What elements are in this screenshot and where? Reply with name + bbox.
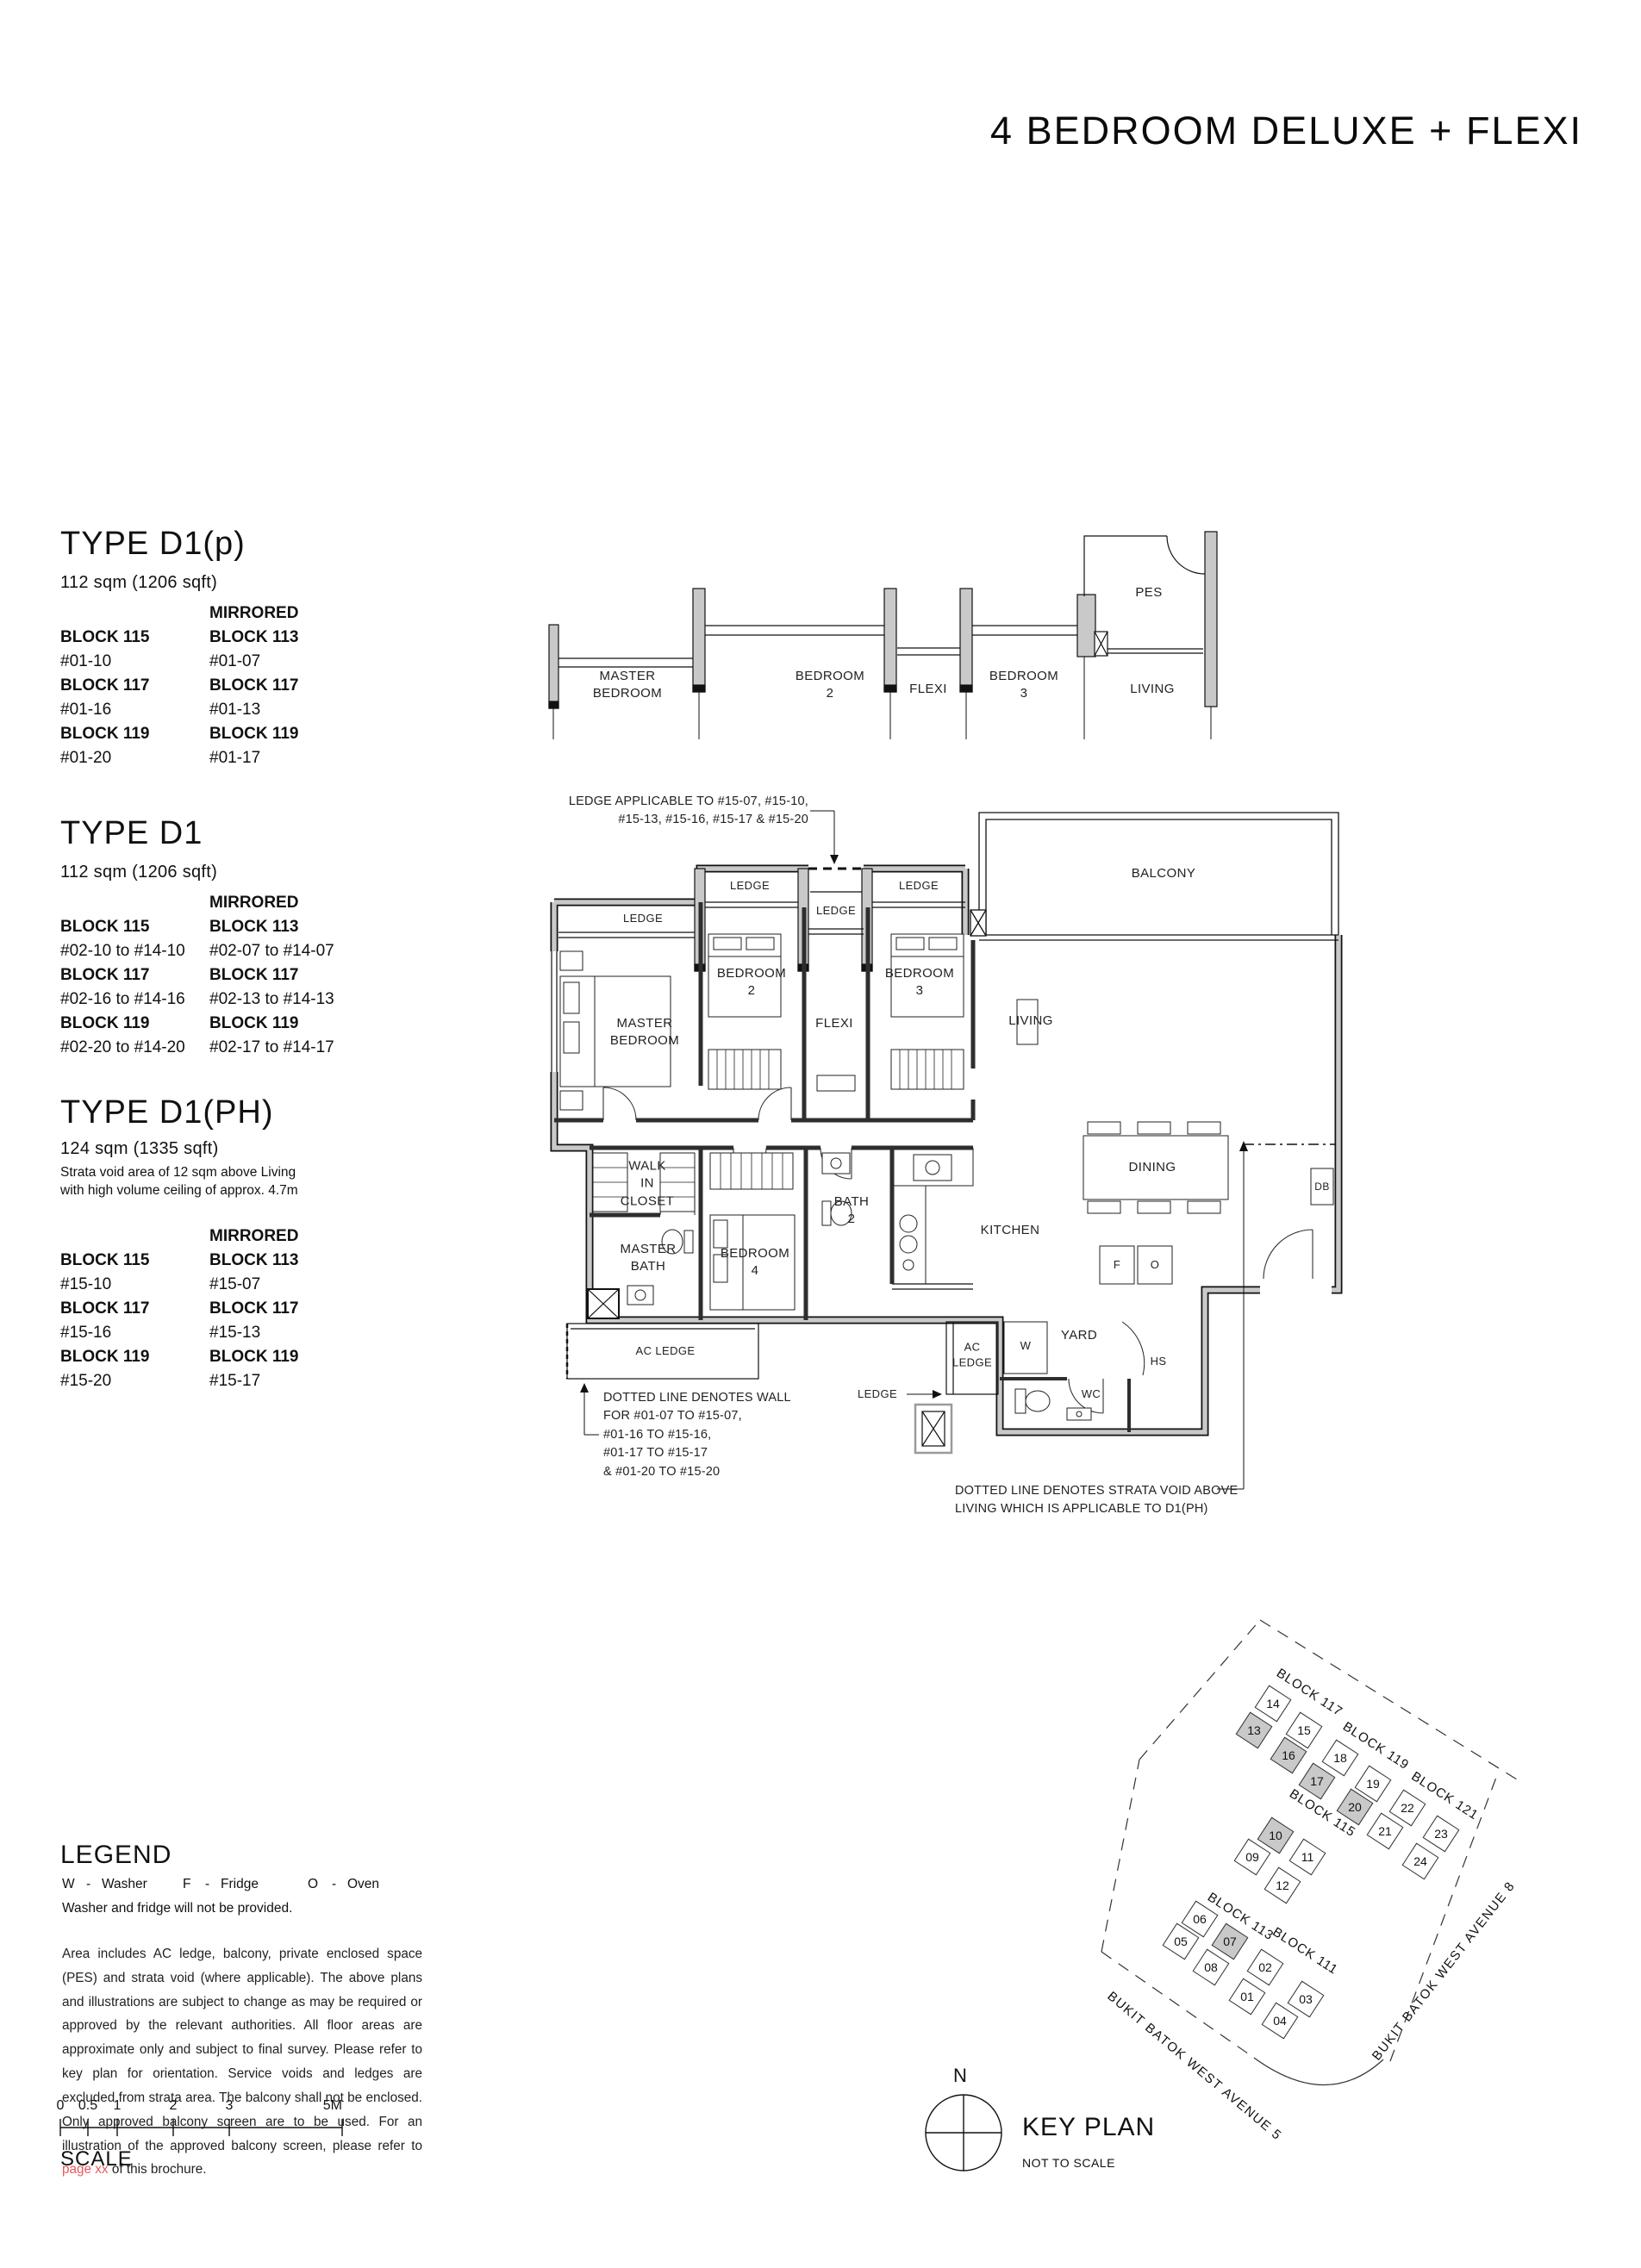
unit-range: #02-17 to #14-17 [209, 1036, 371, 1060]
type-area: 112 sqm (1206 sqft) [60, 863, 371, 882]
unit-range: #15-17 [209, 1369, 371, 1393]
keyplan-unit [1389, 1790, 1425, 1825]
keyplan-unit [1367, 1813, 1402, 1848]
keyplan-unit-number: 14 [1266, 1697, 1280, 1710]
keyplan-unit-number: 11 [1301, 1850, 1314, 1864]
label-fridge: F [1114, 1257, 1120, 1273]
block-name: BLOCK 117 [60, 963, 209, 988]
room-label-walk-in-closet: WALK IN CLOSET [621, 1158, 674, 1211]
room-label-flexi-upper: FLEXI [909, 681, 947, 698]
unit-range: #02-10 to #14-10 [60, 939, 209, 963]
room-label-pes: PES [1135, 584, 1162, 601]
room-label-bedroom3: BEDROOM 3 [885, 965, 954, 1000]
unit-range: #01-07 [209, 650, 371, 674]
block-name: BLOCK 119 [209, 1012, 371, 1036]
legend-heading: LEGEND [60, 1841, 172, 1870]
unit-range: #01-16 [60, 698, 209, 722]
unit-range: #15-16 [60, 1321, 209, 1345]
keyplan-units: 1413151618171920222123241009111206050708… [1163, 1685, 1458, 2038]
keyplan-unit [1355, 1766, 1390, 1801]
type-area: 124 sqm (1335 sqft) [60, 1139, 371, 1159]
block-label: BLOCK 117 [1274, 1666, 1345, 1719]
type-block-d1: TYPE D1 112 sqm (1206 sqft) M BLOCK 115 … [60, 817, 371, 1060]
label-ledge-small: LEDGE [858, 1386, 897, 1402]
room-label-bedroom2-upper: BEDROOM 2 [796, 668, 864, 703]
legend-key: W [62, 1877, 75, 1892]
ledge-label: LEDGE [899, 878, 939, 894]
keyplan-unit [1322, 1740, 1357, 1775]
road-label: BUKIT BATOK WEST AVENUE 8 [1370, 1879, 1519, 2063]
keyplan-unit-number: 23 [1434, 1827, 1448, 1841]
unit-range: #02-16 to #14-16 [60, 988, 209, 1012]
north-label: N [953, 2065, 967, 2087]
keyplan-unit [1402, 1843, 1438, 1879]
mirrored-label: MIRRORED [209, 1224, 371, 1249]
room-label-bedroom4: BEDROOM 4 [721, 1245, 789, 1280]
keyplan-unit-number: 17 [1310, 1774, 1324, 1788]
legend-sep: - [205, 1877, 209, 1892]
annotation-leaders [580, 811, 1335, 1489]
keyplan-unit [1262, 2003, 1297, 2038]
block-name: BLOCK 117 [209, 1297, 371, 1321]
type-block-d1ph: TYPE D1(PH) 124 sqm (1335 sqft) Strata v… [60, 1096, 371, 1393]
mirrored-label: MIRRORED [209, 891, 371, 915]
keyplan-not-to-scale: NOT TO SCALE [1022, 2156, 1115, 2170]
legend-note: Washer and fridge will not be provided. [62, 1901, 292, 1916]
block-name: BLOCK 113 [209, 626, 371, 650]
legend-sep: - [332, 1877, 336, 1892]
block-name: BLOCK 119 [209, 1345, 371, 1369]
label-washer: W [1020, 1338, 1032, 1354]
keyplan-unit-number: 22 [1401, 1801, 1414, 1815]
block-name: BLOCK 119 [60, 722, 209, 746]
room-label-living: LIVING [1008, 1012, 1053, 1030]
label-oven: O [1151, 1257, 1160, 1273]
disclaimer-text: Area includes AC ledge, balcony, private… [62, 1942, 422, 2182]
room-label-bedroom2: BEDROOM 2 [717, 965, 786, 1000]
keyplan-unit [1212, 1923, 1247, 1959]
annotation-strata-void: DOTTED LINE DENOTES STRATA VOID ABOVE LI… [955, 1482, 1238, 1519]
legend-value: Fridge [221, 1877, 259, 1892]
block-name: BLOCK 117 [209, 674, 371, 698]
type-title: TYPE D1(p) [60, 527, 371, 560]
disclaimer-pre: Area includes AC ledge, balcony, private… [62, 1947, 422, 2153]
room-label-balcony: BALCONY [1132, 865, 1196, 882]
keyplan-unit-number: 13 [1247, 1723, 1261, 1737]
block-name: BLOCK 115 [60, 1249, 209, 1273]
block-label: BLOCK 121 [1408, 1769, 1481, 1823]
room-label-wc: WC [1082, 1386, 1101, 1402]
unit-range: #15-20 [60, 1369, 209, 1393]
keyplan-unit [1423, 1816, 1458, 1851]
unit-range: #01-13 [209, 698, 371, 722]
unit-range: #02-13 to #14-13 [209, 988, 371, 1012]
keyplan-unit [1264, 1867, 1300, 1903]
keyplan-unit-number: 20 [1348, 1800, 1362, 1814]
block-name: BLOCK 113 [209, 915, 371, 939]
block-name: BLOCK 117 [60, 674, 209, 698]
ledge-label: LEDGE [730, 878, 770, 894]
unit-range: #02-20 to #14-20 [60, 1036, 209, 1060]
scale-label: SCALE [60, 2147, 133, 2171]
type-title: TYPE D1 [60, 817, 371, 850]
unit-range: #15-10 [60, 1273, 209, 1297]
unit-range: #15-07 [209, 1273, 371, 1297]
keyplan-block-labels: BLOCK 117 BLOCK 119 BLOCK 121 BLOCK 115 … [1205, 1666, 1481, 1978]
keyplan-unit [1289, 1839, 1325, 1874]
keyplan-unit-number: 01 [1240, 1990, 1254, 2003]
unit-range: #15-13 [209, 1321, 371, 1345]
keyplan-unit [1182, 1901, 1217, 1936]
room-label-master-bedroom: MASTER BEDROOM [610, 1015, 679, 1050]
mirrored-label: MIRRORED [209, 601, 371, 626]
legend-key: O [308, 1877, 318, 1892]
keyplan-unit-number: 15 [1297, 1723, 1311, 1737]
type-title: TYPE D1(PH) [60, 1096, 371, 1129]
block-label: BLOCK 111 [1270, 1924, 1340, 1978]
north-compass-icon [926, 2095, 1001, 2171]
keyplan-unit [1255, 1685, 1290, 1721]
page-title: 4 BEDROOM DELUXE + FLEXI [990, 109, 1582, 153]
keyplan-unit [1299, 1763, 1334, 1798]
legend-value: Oven [347, 1877, 379, 1892]
block-name: BLOCK 119 [60, 1345, 209, 1369]
annotation-dotted-wall: DOTTED LINE DENOTES WALL FOR #01-07 TO #… [603, 1389, 791, 1481]
keyplan-unit-number: 12 [1276, 1879, 1289, 1892]
keyplan-unit [1288, 1981, 1323, 2016]
keyplan-unit-number: 09 [1245, 1850, 1259, 1864]
upper-partial-plan [549, 532, 1217, 739]
keyplan-unit [1236, 1712, 1271, 1748]
keyplan-unit-number: 10 [1269, 1829, 1282, 1842]
unit-range: #02-07 to #14-07 [209, 939, 371, 963]
keyplan-unit [1163, 1923, 1198, 1959]
block-name: BLOCK 119 [60, 1012, 209, 1036]
keyplan-unit-number: 02 [1258, 1960, 1272, 1974]
keyplan-unit-number: 04 [1273, 2014, 1287, 2028]
room-label-bedroom3-upper: BEDROOM 3 [989, 668, 1058, 703]
keyplan-unit-number: 19 [1366, 1777, 1380, 1791]
window-lines [558, 892, 973, 1289]
legend-key: F [183, 1877, 190, 1892]
keyplan-unit-number: 16 [1282, 1748, 1295, 1762]
block-name: BLOCK 117 [209, 963, 371, 988]
label-ac-ledge-mid: AC LEDGE [952, 1339, 992, 1369]
block-name: BLOCK 115 [60, 626, 209, 650]
annotation-ledge-applicable: LEDGE APPLICABLE TO #15-07, #15-10, #15-… [569, 793, 808, 830]
keyplan-unit-number: 06 [1193, 1912, 1207, 1926]
type-note: Strata void area of 12 sqm above Living … [60, 1164, 371, 1200]
block-name: BLOCK 113 [209, 1249, 371, 1273]
unit-range: #01-17 [209, 746, 371, 770]
room-label-living-upper: LIVING [1130, 681, 1175, 698]
keyplan-unit [1229, 1978, 1264, 2014]
block-name: BLOCK 119 [209, 722, 371, 746]
legend-value: Washer [102, 1877, 147, 1892]
keyplan-unit [1286, 1712, 1321, 1748]
keyplan-title: KEY PLAN [1022, 2113, 1155, 2142]
room-label-master-bath: MASTER BATH [621, 1241, 677, 1276]
label-ac-ledge-left: AC LEDGE [636, 1343, 696, 1359]
unit-range: #01-10 [60, 650, 209, 674]
room-label-bath2: BATH 2 [834, 1193, 870, 1229]
ledge-label: LEDGE [816, 903, 856, 919]
room-label-yard: YARD [1061, 1327, 1097, 1344]
type-area: 112 sqm (1206 sqft) [60, 573, 371, 593]
ledge-label: LEDGE [623, 911, 663, 926]
room-label-dining: DINING [1129, 1159, 1176, 1176]
block-name: BLOCK 115 [60, 915, 209, 939]
room-label-master-bedroom-upper: MASTER BEDROOM [593, 668, 662, 703]
keyplan-unit [1270, 1737, 1306, 1773]
keyplan-unit [1234, 1839, 1270, 1874]
keyplan-unit-number: 21 [1378, 1824, 1392, 1838]
block-label: BLOCK 119 [1340, 1719, 1412, 1773]
keyplan-unit-number: 05 [1174, 1935, 1188, 1948]
keyplan-unit [1247, 1949, 1282, 1984]
room-label-kitchen: KITCHEN [981, 1222, 1040, 1239]
unit-range: #01-20 [60, 746, 209, 770]
block-label: BLOCK 113 [1205, 1890, 1276, 1943]
keyplan-road-labels: BUKIT BATOK WEST AVENUE 5 BUKIT BATOK WE… [1104, 1879, 1518, 2143]
label-db: DB [1314, 1180, 1329, 1193]
keyplan-unit [1337, 1789, 1372, 1824]
brochure-page: 1413151618171920222123241009111206050708… [0, 0, 1641, 2268]
room-label-flexi: FLEXI [815, 1015, 853, 1032]
label-hs: HS [1151, 1354, 1167, 1369]
keyplan-unit-number: 24 [1413, 1854, 1427, 1868]
keyplan-unit [1193, 1949, 1228, 1984]
type-block-d1p: TYPE D1(p) 112 sqm (1206 sqft) M BLOCK 1… [60, 527, 371, 770]
key-plan: 1413151618171920222123241009111206050708… [926, 1620, 1518, 2171]
keyplan-unit-number: 03 [1299, 1992, 1313, 2006]
keyplan-unit-number: 18 [1333, 1751, 1347, 1765]
keyplan-unit-number: 08 [1204, 1960, 1218, 1974]
keyplan-unit-number: 07 [1223, 1935, 1237, 1948]
legend-sep: - [86, 1877, 90, 1892]
block-label: BLOCK 115 [1287, 1786, 1358, 1840]
block-name: BLOCK 117 [60, 1297, 209, 1321]
keyplan-unit [1257, 1817, 1293, 1853]
